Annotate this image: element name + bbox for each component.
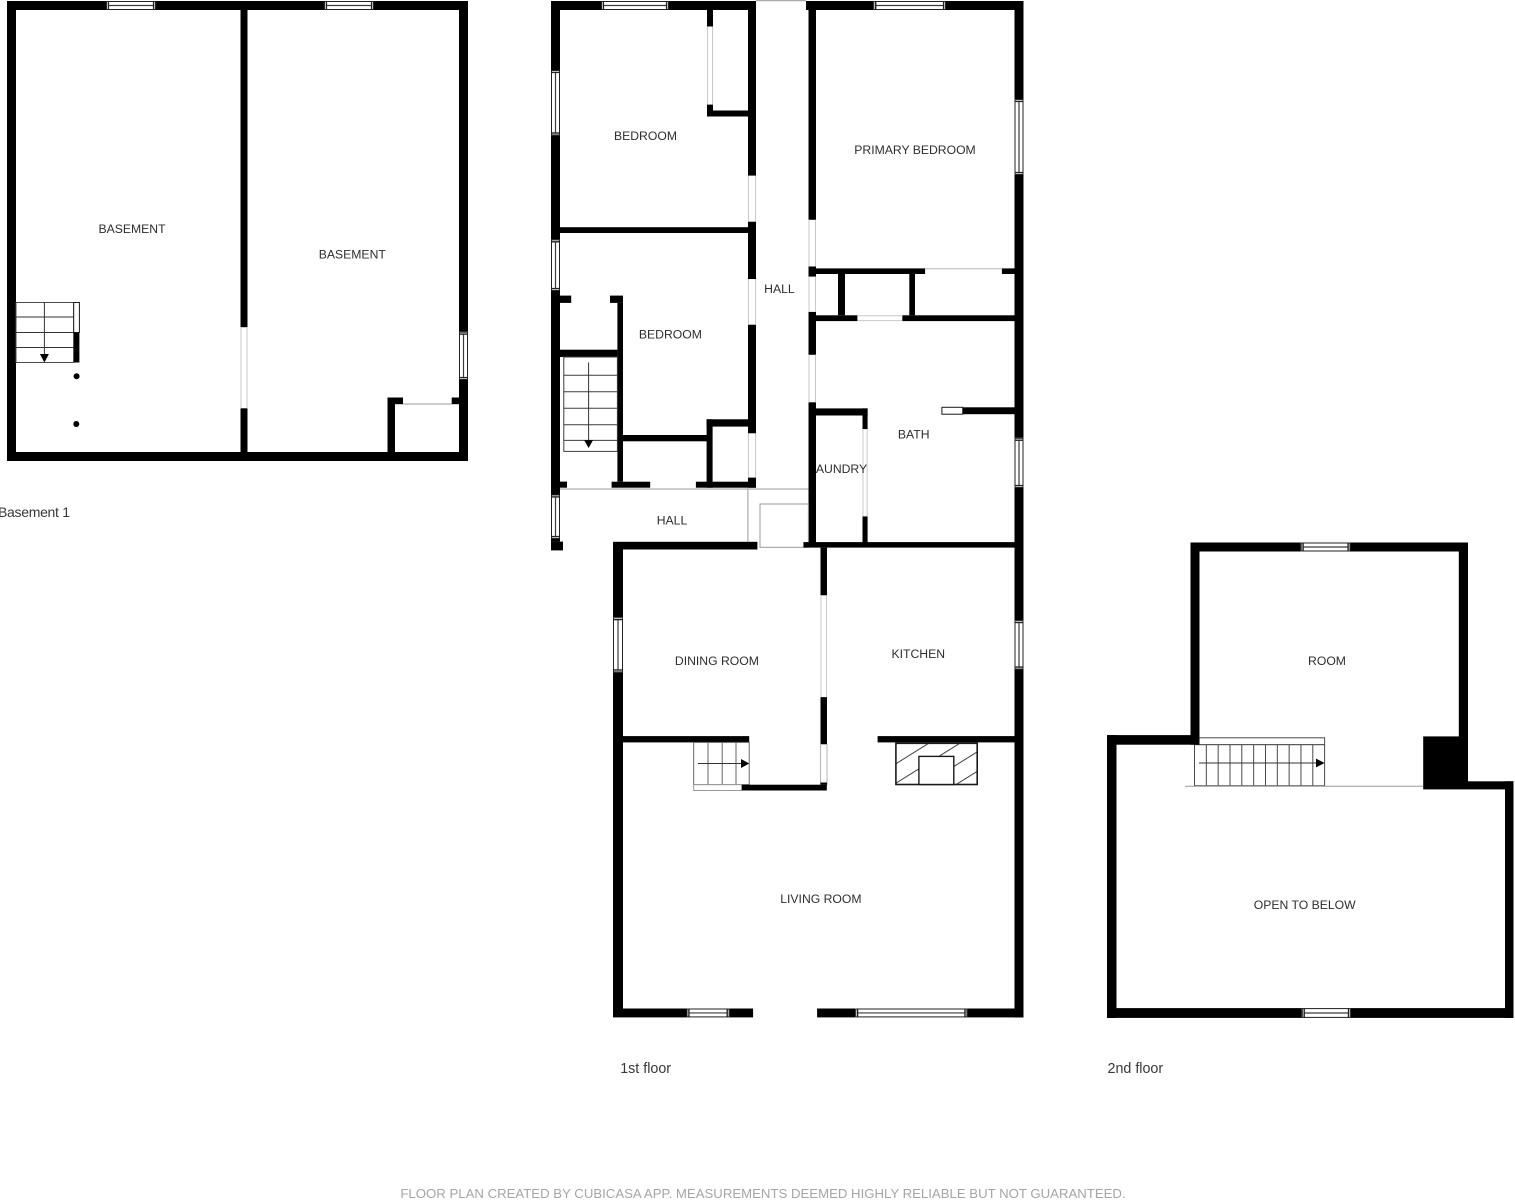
svg-text:BEDROOM: BEDROOM	[614, 129, 677, 143]
svg-text:Basement 1: Basement 1	[0, 504, 70, 520]
svg-text:BASEMENT: BASEMENT	[319, 248, 387, 262]
svg-text:OPEN TO BELOW: OPEN TO BELOW	[1254, 898, 1356, 912]
svg-text:2nd floor: 2nd floor	[1108, 1061, 1164, 1077]
svg-text:BASEMENT: BASEMENT	[98, 222, 166, 236]
svg-text:AUNDRY: AUNDRY	[816, 462, 867, 476]
svg-text:KITCHEN: KITCHEN	[892, 647, 946, 661]
svg-text:HALL: HALL	[764, 282, 795, 296]
svg-text:DINING ROOM: DINING ROOM	[675, 654, 759, 668]
svg-text:BEDROOM: BEDROOM	[639, 328, 702, 342]
svg-text:HALL: HALL	[657, 514, 688, 528]
svg-text:FLOOR PLAN CREATED BY CUBICASA: FLOOR PLAN CREATED BY CUBICASA APP. MEAS…	[400, 1186, 1125, 1200]
svg-text:PRIMARY BEDROOM: PRIMARY BEDROOM	[854, 143, 975, 157]
svg-text:1st floor: 1st floor	[620, 1061, 671, 1077]
svg-text:BATH: BATH	[898, 428, 930, 442]
svg-text:LIVING ROOM: LIVING ROOM	[780, 892, 861, 906]
svg-text:ROOM: ROOM	[1308, 654, 1346, 668]
